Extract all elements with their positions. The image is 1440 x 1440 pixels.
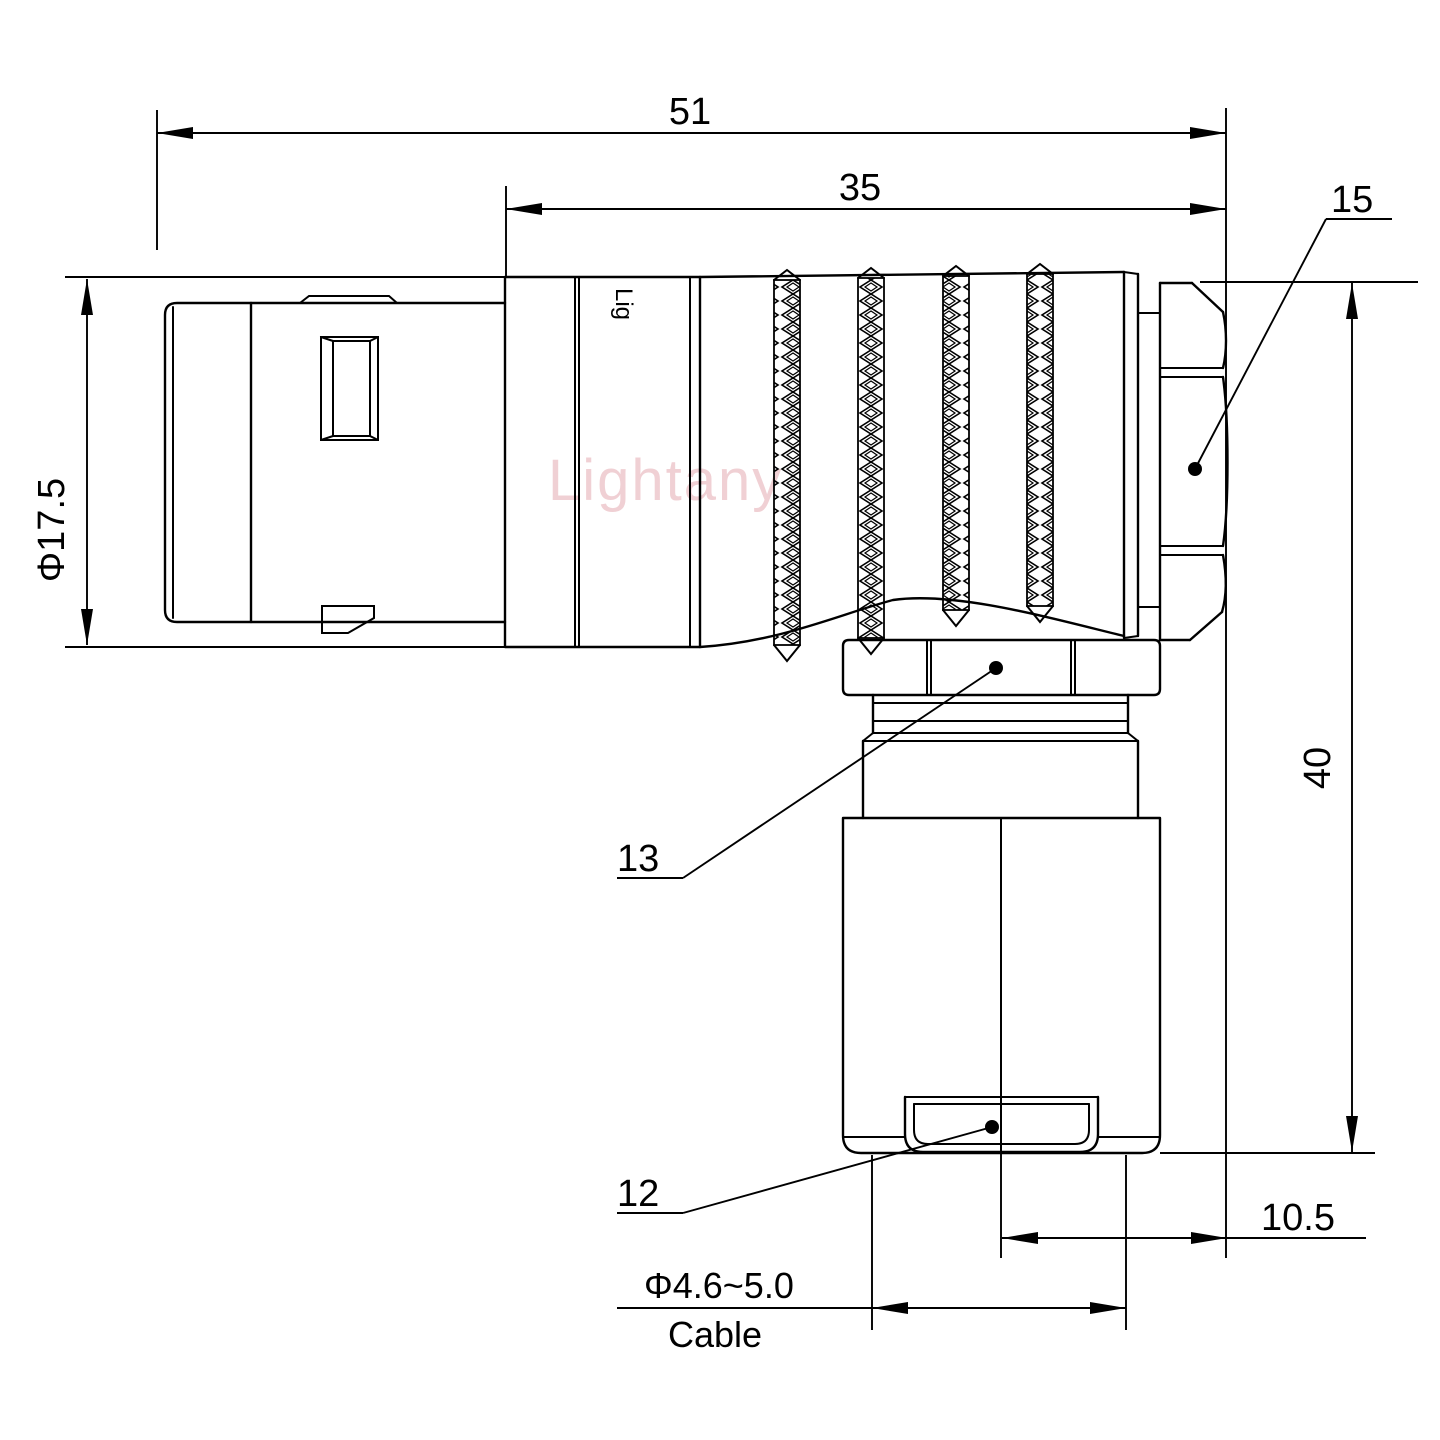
dim-overall-length: 51 bbox=[157, 91, 1226, 139]
connector-dimension-drawing: Lightany Lig bbox=[0, 0, 1440, 1440]
ref-15-dot bbox=[1188, 462, 1202, 476]
ref-15-leader: 15 bbox=[1188, 179, 1392, 476]
elbow-body bbox=[843, 640, 1160, 1153]
dim-body-length: 35 bbox=[506, 167, 1226, 215]
dim-cable-offset-label: 10.5 bbox=[1261, 1197, 1335, 1239]
body-marking-text: Lig bbox=[610, 288, 637, 320]
ref-13-dot bbox=[989, 661, 1003, 675]
dim-cable-offset: 10.5 bbox=[1002, 1197, 1366, 1244]
dim-shell-diameter: Φ17.5 bbox=[31, 279, 93, 645]
dim-overall-length-label: 51 bbox=[669, 91, 711, 133]
latch-wedge bbox=[322, 606, 374, 633]
latch-window bbox=[321, 337, 378, 440]
dim-height: 40 bbox=[1297, 283, 1358, 1152]
dim-cable-diameter-label: Φ4.6~5.0 bbox=[644, 1265, 794, 1306]
hex-backnut bbox=[1138, 283, 1228, 640]
watermark-text: Lightany bbox=[548, 448, 783, 513]
dim-body-length-label: 35 bbox=[839, 167, 881, 209]
dim-height-label: 40 bbox=[1297, 747, 1339, 789]
ref-12-leader: 12 bbox=[617, 1120, 999, 1215]
cable-caption-label: Cable bbox=[668, 1314, 762, 1355]
ref-12-dot bbox=[985, 1120, 999, 1134]
ref-12-label: 12 bbox=[617, 1173, 659, 1215]
ref-13-label: 13 bbox=[617, 838, 659, 880]
dim-shell-diameter-label: Φ17.5 bbox=[31, 478, 73, 582]
dimensions: 51 35 Φ17.5 40 10.5 bbox=[31, 91, 1418, 1355]
technical-drawing-page: Lightany Lig bbox=[0, 0, 1440, 1440]
knurl-bands bbox=[774, 264, 1053, 661]
ref-15-label: 15 bbox=[1331, 179, 1373, 221]
